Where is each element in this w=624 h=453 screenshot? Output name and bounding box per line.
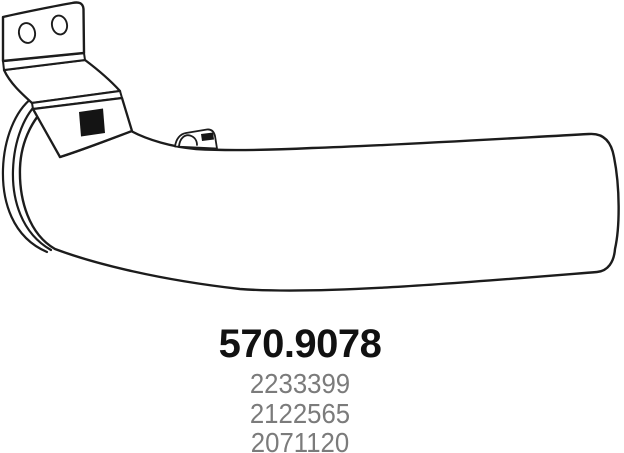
oe-number: 2233399 bbox=[24, 369, 576, 399]
oe-number-list: 2233399 2122565 2071120 bbox=[24, 369, 576, 453]
drawing-strokes bbox=[3, 3, 619, 291]
bracket-slot bbox=[79, 109, 105, 137]
clamp-slot bbox=[201, 133, 214, 142]
exhaust-pipe-drawing bbox=[0, 0, 624, 310]
part-number: 570.9078 bbox=[0, 324, 600, 364]
oe-number: 2122565 bbox=[24, 399, 576, 429]
oe-number: 2071120 bbox=[24, 428, 576, 453]
part-numbers-block: 570.9078 2233399 2122565 2071120 bbox=[0, 324, 600, 453]
product-illustration-page: 570.9078 2233399 2122565 2071120 bbox=[0, 0, 624, 453]
bracket-plate bbox=[3, 3, 84, 61]
